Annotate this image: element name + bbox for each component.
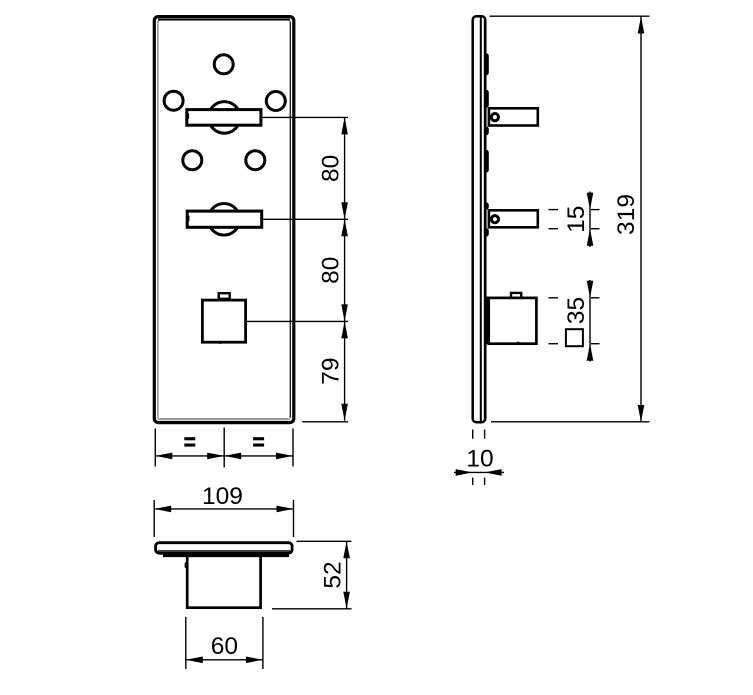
svg-text:60: 60 bbox=[211, 633, 238, 660]
svg-text:35: 35 bbox=[563, 297, 590, 324]
svg-text:80: 80 bbox=[318, 257, 345, 284]
svg-text:79: 79 bbox=[318, 357, 345, 384]
svg-text:10: 10 bbox=[466, 446, 493, 473]
svg-text:109: 109 bbox=[202, 483, 243, 510]
svg-text:15: 15 bbox=[563, 206, 590, 233]
svg-text:319: 319 bbox=[613, 194, 640, 235]
svg-text:80: 80 bbox=[318, 155, 345, 182]
svg-text:52: 52 bbox=[320, 561, 347, 588]
